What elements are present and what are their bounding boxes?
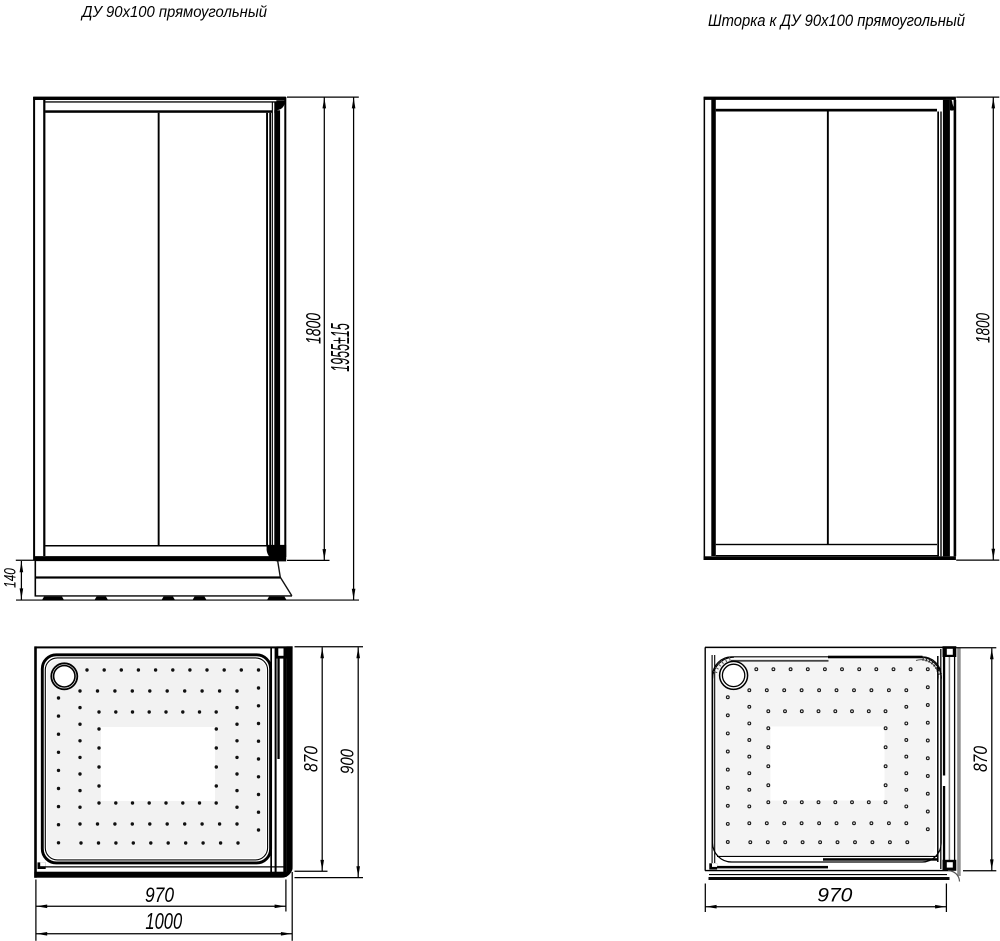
svg-text:900: 900 [337, 748, 358, 774]
svg-text:970: 970 [817, 885, 853, 906]
svg-text:870: 870 [970, 746, 992, 772]
svg-text:970: 970 [145, 884, 174, 907]
svg-text:1800: 1800 [301, 313, 325, 344]
svg-text:Шторка к ДУ 90x100 прямоугольн: Шторка к ДУ 90x100 прямоугольный [708, 11, 965, 30]
svg-text:140: 140 [1, 567, 20, 588]
svg-text:870: 870 [300, 746, 322, 772]
svg-text:ДУ 90x100 прямоугольный: ДУ 90x100 прямоугольный [80, 4, 267, 21]
svg-text:1800: 1800 [972, 312, 994, 342]
svg-text:1000: 1000 [145, 909, 182, 934]
svg-text:1955±15: 1955±15 [327, 323, 355, 372]
